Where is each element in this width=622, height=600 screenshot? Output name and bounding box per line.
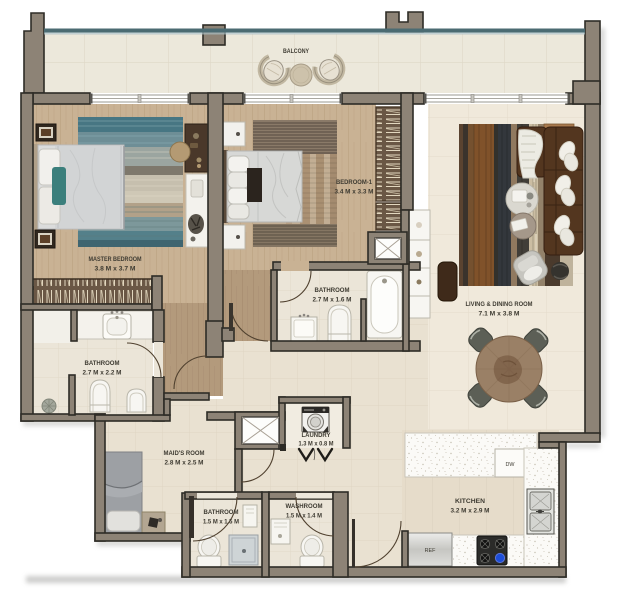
svg-text:BATHROOM: BATHROOM (204, 509, 239, 516)
svg-text:LIVING & DINING ROOM: LIVING & DINING ROOM (466, 301, 533, 308)
svg-text:3.8 M x 3.7 M: 3.8 M x 3.7 M (95, 266, 136, 273)
svg-text:KITCHEN: KITCHEN (455, 498, 485, 505)
svg-text:LAUNDRY: LAUNDRY (302, 432, 332, 439)
svg-text:2.8 M x 2.5 M: 2.8 M x 2.5 M (165, 460, 204, 467)
svg-text:REF: REF (425, 548, 436, 554)
svg-text:7.1 M x 3.8 M: 7.1 M x 3.8 M (479, 311, 520, 318)
svg-text:BATHROOM: BATHROOM (315, 287, 350, 294)
svg-text:2.7 M x 2.2 M: 2.7 M x 2.2 M (83, 370, 122, 377)
svg-text:MASTER BEDROOM: MASTER BEDROOM (89, 256, 142, 263)
svg-text:1.5 M x 1.4 M: 1.5 M x 1.4 M (286, 513, 322, 520)
svg-text:WASHROOM: WASHROOM (286, 503, 323, 510)
svg-text:BEDROOM-1: BEDROOM-1 (336, 179, 372, 186)
svg-text:BALCONY: BALCONY (283, 48, 310, 55)
svg-text:1.3 M x 0.8 M: 1.3 M x 0.8 M (299, 442, 334, 448)
svg-text:BATHROOM: BATHROOM (85, 360, 120, 367)
svg-text:2.7 M x 1.6 M: 2.7 M x 1.6 M (313, 297, 352, 304)
svg-text:3.2 M x 2.9 M: 3.2 M x 2.9 M (451, 508, 490, 515)
svg-text:3.4 M x 3.3 M: 3.4 M x 3.3 M (335, 189, 374, 196)
svg-text:1.5 M x 1.5 M: 1.5 M x 1.5 M (203, 519, 239, 526)
svg-text:DW: DW (506, 462, 516, 468)
svg-text:MAID'S ROOM: MAID'S ROOM (164, 450, 205, 457)
